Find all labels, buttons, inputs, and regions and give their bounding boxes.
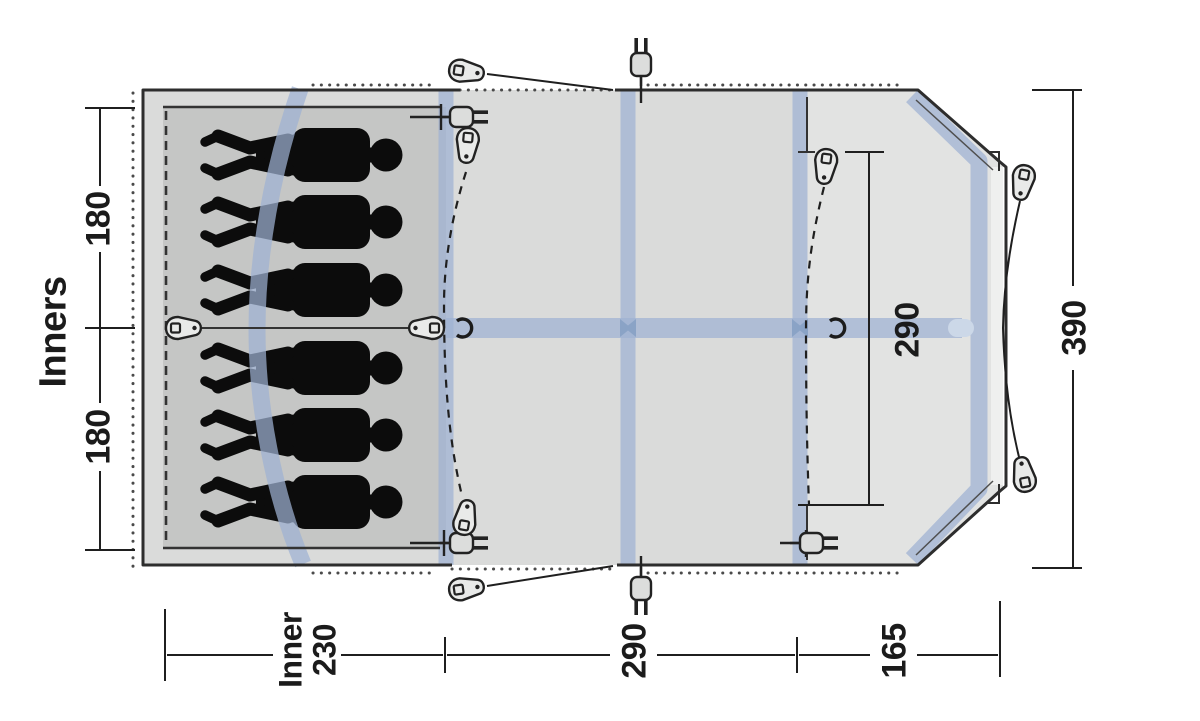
- inner-depth-bottom-label: 180: [79, 409, 117, 464]
- bottom-inner-word-label: Inner: [273, 612, 309, 688]
- total-depth-label: 390: [1055, 300, 1093, 355]
- tent-peg-icon: [166, 317, 201, 339]
- bottom-porch-width-label: 165: [875, 623, 913, 678]
- tent-floorplan-diagram: Inners 180 180 390 290 Inner 230 290 165: [0, 0, 1200, 721]
- front-canopy-strip: [991, 167, 1003, 485]
- tent-peg-icon: [1010, 455, 1038, 493]
- tent-peg-icon: [448, 575, 486, 602]
- bottom-inner-width-label: 230: [307, 624, 343, 676]
- tent-peg-icon: [1009, 163, 1037, 201]
- bottom-living-width-label: 290: [615, 623, 653, 678]
- inners-label: Inners: [33, 276, 75, 387]
- tent-peg-icon: [409, 317, 444, 339]
- inner-depth-top-label: 180: [79, 191, 117, 246]
- porch-height-label: 290: [888, 302, 926, 357]
- ridge-band-end-cap: [948, 319, 974, 337]
- tent-peg-icon: [448, 58, 486, 85]
